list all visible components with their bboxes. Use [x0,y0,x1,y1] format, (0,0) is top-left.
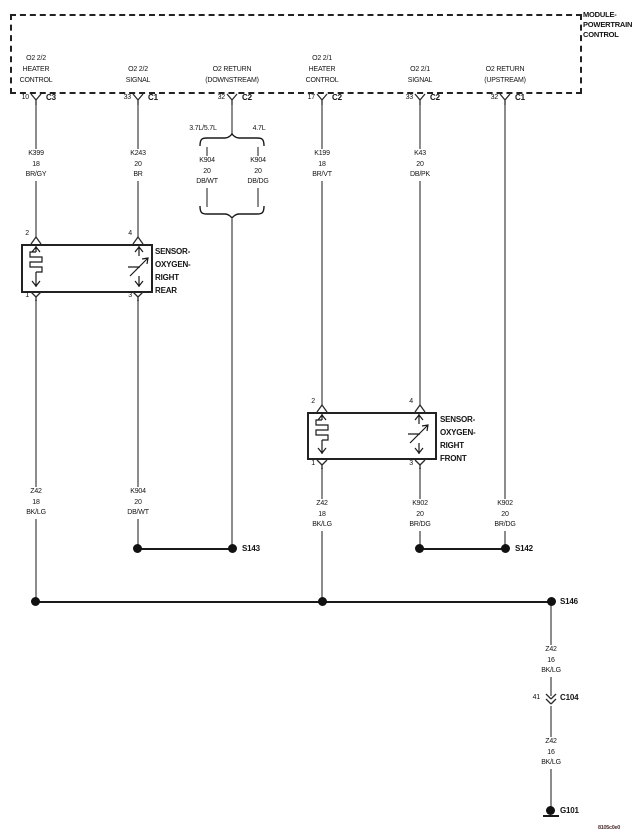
wire-label-k904-dbdg: K904 20 DB/DG [245,156,270,188]
wire-label-k399: K399 18 BR/GY [24,149,49,181]
connector-y-icon [414,459,426,469]
wire-k904-main-lower [231,219,233,549]
connector-y-icon [132,291,144,301]
sensor-front-label: SENSOR- OXYGEN- RIGHT FRONT [440,413,476,465]
engine-branch-label-37l: 3.7L/5.7L [187,124,218,135]
pin-number: 33 [111,94,131,101]
splice-dot [31,597,40,606]
splice-dot [415,544,424,553]
wire-z42-rear [35,300,37,602]
wire-label-k243: K243 20 BR [128,149,148,181]
module-label: MODULE- POWERTRAIN CONTROL [583,10,632,40]
signal-label-o2-21-heater: O2 2/1 HEATER CONTROL [306,53,339,86]
connector-c104-label: C104 [560,693,578,702]
splice-s143-label: S143 [242,544,260,553]
sensor-rear-pin-2: 2 [13,230,29,237]
ground-symbol-icon [546,806,555,815]
signal-label-o2-21-signal: O2 2/1 SIGNAL [408,64,432,86]
wire-label-k902-signal: K902 20 BR/DG [407,499,432,531]
splice-dot [228,544,237,553]
splice-dot [318,597,327,606]
sensor-front-pin-2: 2 [299,398,315,405]
sensor-front-pin-3: 3 [397,460,413,467]
sensor-rear-pin-3: 3 [116,292,132,299]
pin-number: 10 [9,94,29,101]
connector-name: C1 [148,93,158,102]
heater-element-icon [26,246,46,287]
sensor-rear-pin-1: 1 [13,292,29,299]
wire-z42-front [321,468,323,602]
wire-label-k902-return: K902 20 BR/DG [492,499,517,531]
variable-resistor-icon [405,414,433,454]
splice-dot [501,544,510,553]
wire-label-k904-dbwt: K904 20 DB/WT [194,156,220,188]
wire-k904-main-upper [231,105,233,135]
brace-split-top-icon [199,133,265,147]
splice-dot [547,597,556,606]
connector-name: C3 [46,93,56,102]
sensor-rear-label: SENSOR- OXYGEN- RIGHT REAR [155,245,191,297]
connector-name: C1 [515,93,525,102]
ground-g101-label: G101 [560,806,579,815]
diagram-id: 8105c0e0 [598,825,620,831]
pin-number: 33 [393,94,413,101]
connector-y-icon [316,459,328,469]
brace-merge-bottom-icon [199,205,265,219]
wire-k902-return [504,105,506,549]
sensor-front-pin-4: 4 [397,398,413,405]
sensor-rear-pin-4: 4 [116,230,132,237]
wire-label-k904-lower: K904 20 DB/WT [125,487,151,519]
signal-label-o2-return-up: O2 RETURN (UPSTREAM) [484,64,526,86]
inline-connector-icon [545,693,557,705]
splice-s142-link [419,548,506,550]
connector-name: C2 [242,93,252,102]
splice-s146-label: S146 [560,597,578,606]
signal-label-o2-return-down: O2 RETURN (DOWNSTREAM) [205,64,259,86]
wire-label-z42-rear: Z42 18 BK/LG [24,487,48,519]
connector-name: C2 [430,93,440,102]
splice-s143-link [137,548,233,550]
engine-branch-label-47l: 4.7L [251,124,268,135]
sensor-front-pin-1: 1 [299,460,315,467]
wire-label-z42-16-upper: Z42 16 BK/LG [539,645,563,677]
pin-number: 17 [295,94,315,101]
connector-y-icon [30,291,42,301]
pin-number: 32 [478,94,498,101]
heater-element-icon [312,414,332,454]
wire-label-k43: K43 20 DB/PK [408,149,432,181]
signal-label-o2-22-signal: O2 2/2 SIGNAL [126,64,150,86]
ground-symbol-line [543,815,559,817]
splice-dot [133,544,142,553]
connector-name: C2 [332,93,342,102]
wire-label-z42-front: Z42 18 BK/LG [310,499,334,531]
pin-number: 32 [205,94,225,101]
ground-bus-line [35,601,552,603]
wiring-diagram-page: { "module": { "label": "MODULE-\nPOWERTR… [0,0,640,838]
variable-resistor-icon [125,246,153,287]
c104-pin-number: 41 [522,694,540,701]
wire-label-z42-16-lower: Z42 16 BK/LG [539,737,563,769]
signal-label-o2-22-heater: O2 2/2 HEATER CONTROL [20,53,53,86]
wire-label-k199: K199 18 BR/VT [310,149,334,181]
splice-s142-label: S142 [515,544,533,553]
